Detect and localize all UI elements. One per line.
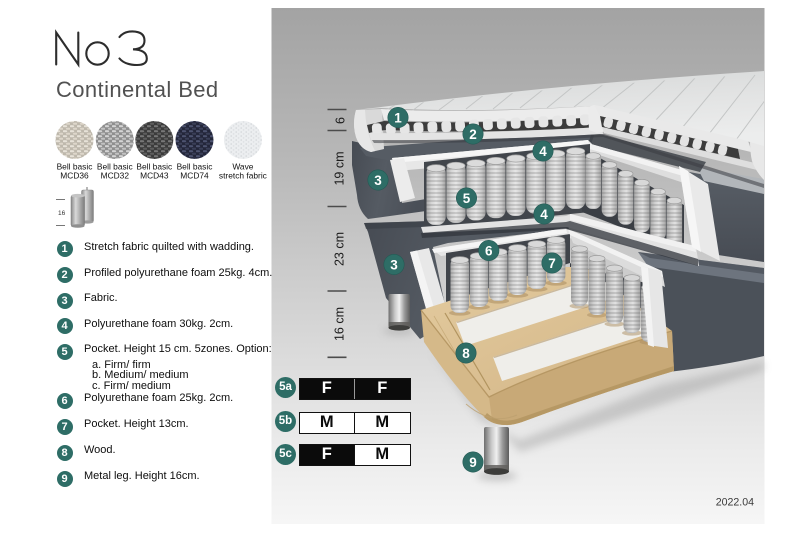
svg-text:7: 7 <box>548 256 556 271</box>
svg-text:3: 3 <box>374 173 382 188</box>
svg-text:5: 5 <box>463 191 471 206</box>
svg-text:9: 9 <box>469 455 477 470</box>
svg-text:19 cm: 19 cm <box>332 151 346 185</box>
svg-text:stretch fabric: stretch fabric <box>219 171 267 181</box>
svg-text:8: 8 <box>462 346 470 361</box>
svg-text:MCD32: MCD32 <box>101 171 130 181</box>
svg-text:4: 4 <box>540 207 548 222</box>
svg-text:MCD36: MCD36 <box>60 171 89 181</box>
svg-text:2: 2 <box>469 127 477 142</box>
svg-text:16: 16 <box>58 210 66 217</box>
svg-text:4: 4 <box>539 144 547 159</box>
svg-text:3: 3 <box>390 258 398 273</box>
svg-text:1: 1 <box>394 111 402 126</box>
svg-text:16 cm: 16 cm <box>332 307 346 341</box>
svg-text:23 cm: 23 cm <box>332 232 346 266</box>
svg-text:2022.04: 2022.04 <box>716 497 754 509</box>
svg-text:MCD74: MCD74 <box>180 171 209 181</box>
svg-text:6: 6 <box>485 244 493 259</box>
svg-text:6: 6 <box>333 117 347 124</box>
svg-text:MCD43: MCD43 <box>140 171 169 181</box>
